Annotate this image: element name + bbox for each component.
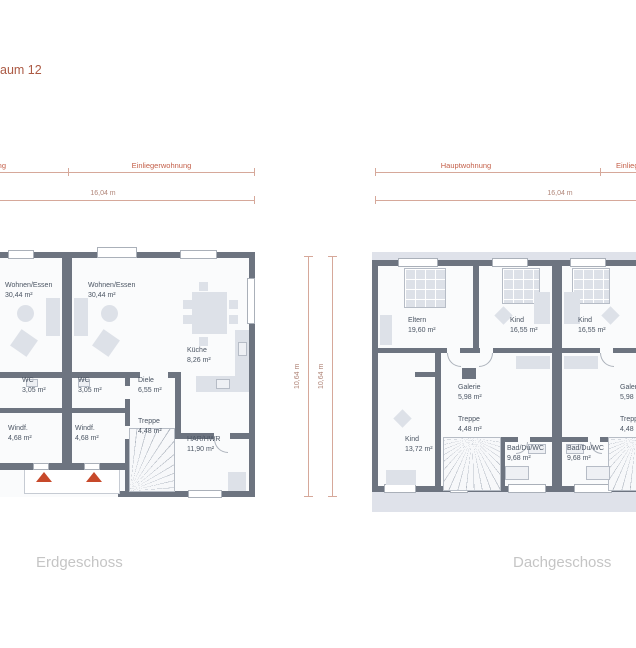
room-name: Wohnen/Essen bbox=[5, 281, 52, 291]
entrance-arrow-icon bbox=[86, 472, 102, 482]
room-name: Treppe bbox=[138, 417, 162, 427]
wardrobe bbox=[564, 356, 598, 369]
zone-label-einliegerwohnung-left: Einliegerwohnung bbox=[68, 161, 255, 170]
staircase bbox=[443, 437, 501, 491]
chair bbox=[199, 282, 208, 291]
bathtub bbox=[586, 466, 610, 480]
room-name: Diele bbox=[138, 376, 162, 386]
chair bbox=[183, 300, 192, 309]
chimney bbox=[462, 368, 476, 379]
room-label-treppe-clipped: Treppe 4,48 m² bbox=[620, 415, 636, 435]
room-label-windfang: Windf. 4,68 m² bbox=[75, 424, 99, 444]
dim-line-vertical bbox=[332, 256, 333, 497]
window bbox=[574, 484, 612, 493]
room-label-treppe: Treppe 4,48 m² bbox=[138, 417, 162, 437]
room-area: 5,98 m² bbox=[620, 393, 636, 403]
wall-middle-left bbox=[378, 348, 552, 353]
window bbox=[188, 490, 222, 498]
window bbox=[492, 258, 528, 267]
room-name: HAR/HWR bbox=[187, 435, 220, 445]
window bbox=[247, 278, 255, 324]
window bbox=[97, 247, 137, 258]
bed bbox=[386, 470, 416, 485]
room-area: 16,55 m² bbox=[578, 326, 606, 336]
room-name: Galerie bbox=[620, 383, 636, 393]
chair bbox=[183, 315, 192, 324]
coffee-table bbox=[17, 305, 34, 322]
sofa bbox=[46, 298, 60, 336]
roof-band-bottom bbox=[372, 492, 636, 512]
room-name: Windf. bbox=[8, 424, 32, 434]
wall-entrance bbox=[0, 463, 126, 470]
entrance-door bbox=[33, 463, 49, 470]
room-name: Kind bbox=[578, 316, 606, 326]
wall-party bbox=[552, 260, 562, 492]
utility-appliance bbox=[228, 472, 246, 491]
wall-middle-right bbox=[562, 348, 636, 353]
window bbox=[398, 258, 438, 267]
wall-hall-kitchen bbox=[175, 372, 181, 433]
room-area: 3,05 m² bbox=[78, 386, 102, 396]
room-name: WC bbox=[22, 376, 46, 386]
door-opening bbox=[125, 386, 130, 399]
dim-line bbox=[0, 172, 255, 173]
room-name: Eltern bbox=[408, 316, 436, 326]
dim-line-vertical bbox=[308, 256, 309, 497]
dim-tick bbox=[304, 256, 313, 257]
caption-dachgeschoss: Dachgeschoss bbox=[513, 554, 611, 571]
room-label-galerie-clipped: Galerie 5,98 m² bbox=[620, 383, 636, 403]
room-label-kind: Kind 16,55 m² bbox=[578, 316, 606, 336]
room-area: 4,68 m² bbox=[8, 434, 32, 444]
window bbox=[180, 250, 217, 259]
dining-table bbox=[192, 292, 227, 334]
wardrobe bbox=[516, 356, 550, 369]
dim-tick bbox=[375, 168, 376, 176]
dim-tick bbox=[254, 168, 255, 176]
room-label-wohnen-essen: Wohnen/Essen 30,44 m² bbox=[88, 281, 135, 301]
room-name: Kind bbox=[510, 316, 538, 326]
room-label-eltern: Eltern 19,60 m² bbox=[408, 316, 436, 336]
room-area: 4,48 m² bbox=[620, 425, 636, 435]
room-label-bad: Bad/Du/WC 9,68 m² bbox=[567, 444, 604, 464]
coffee-table bbox=[101, 305, 118, 322]
room-area: 6,55 m² bbox=[138, 386, 162, 396]
kitchen-hob bbox=[216, 379, 230, 389]
width-dim-label: 16,04 m bbox=[520, 190, 600, 197]
room-area: 16,55 m² bbox=[510, 326, 538, 336]
room-label-wohnen-essen: Wohnen/Essen 30,44 m² bbox=[5, 281, 52, 301]
zone-label-hauptwohnung-right: Hauptwohnung bbox=[375, 161, 557, 170]
caption-erdgeschoss: Erdgeschoss bbox=[36, 554, 123, 571]
room-label-har-hwr: HAR/HWR 11,90 m² bbox=[187, 435, 220, 455]
chair bbox=[199, 337, 208, 346]
bathtub bbox=[505, 466, 529, 480]
room-name: Bad/Du/WC bbox=[567, 444, 604, 454]
dim-tick bbox=[600, 168, 601, 176]
room-name: Treppe bbox=[620, 415, 636, 425]
room-label-kueche: Küche 8,26 m² bbox=[187, 346, 211, 366]
wall-wc-windfang bbox=[0, 408, 126, 413]
room-area: 30,44 m² bbox=[88, 291, 135, 301]
room-area: 4,68 m² bbox=[75, 434, 99, 444]
room-name: Küche bbox=[187, 346, 211, 356]
room-name: Treppe bbox=[458, 415, 482, 425]
room-label-bad: Bad/Du/WC 9,68 m² bbox=[507, 444, 544, 464]
room-name: Kind bbox=[405, 435, 433, 445]
room-name: Bad/Du/WC bbox=[507, 444, 544, 454]
room-area: 30,44 m² bbox=[5, 291, 52, 301]
room-label-wc: WC 3,05 m² bbox=[22, 376, 46, 396]
room-area: 4,48 m² bbox=[138, 427, 162, 437]
dim-line bbox=[375, 172, 636, 173]
chair bbox=[229, 315, 238, 324]
window bbox=[384, 484, 416, 493]
dim-tick bbox=[375, 196, 376, 204]
room-label-kind: Kind 16,55 m² bbox=[510, 316, 538, 336]
room-area: 11,90 m² bbox=[187, 445, 220, 455]
window bbox=[8, 250, 34, 259]
room-label-treppe: Treppe 4,48 m² bbox=[458, 415, 482, 435]
dim-tick bbox=[328, 256, 337, 257]
room-label-diele: Diele 6,55 m² bbox=[138, 376, 162, 396]
room-name: Galerie bbox=[458, 383, 482, 393]
wall-left bbox=[372, 260, 378, 492]
room-area: 8,26 m² bbox=[187, 356, 211, 366]
floorplan-sheet: aum 12 Hauptwohnung Einliegerwohnung 16,… bbox=[0, 0, 636, 648]
room-area: 13,72 m² bbox=[405, 445, 433, 455]
staircase bbox=[129, 428, 175, 492]
wardrobe bbox=[380, 315, 392, 345]
room-name: Windf. bbox=[75, 424, 99, 434]
window bbox=[570, 258, 606, 267]
room-label-kind: Kind 13,72 m² bbox=[405, 435, 433, 455]
room-label-wc: WC 3,05 m² bbox=[78, 376, 102, 396]
dim-tick bbox=[68, 168, 69, 176]
room-label-windfang: Windf. 4,68 m² bbox=[8, 424, 32, 444]
room-area: 19,60 m² bbox=[408, 326, 436, 336]
room-area: 5,98 m² bbox=[458, 393, 482, 403]
dim-line bbox=[375, 200, 636, 201]
room-name: WC bbox=[78, 376, 102, 386]
room-area: 9,68 m² bbox=[507, 454, 544, 464]
wall-party bbox=[62, 258, 72, 470]
dim-tick bbox=[328, 496, 337, 497]
staircase-mirror bbox=[608, 437, 636, 491]
wall-stub bbox=[415, 372, 441, 377]
height-dim-label: 10,64 m bbox=[294, 345, 305, 407]
sofa bbox=[74, 298, 88, 336]
chair bbox=[229, 300, 238, 309]
window bbox=[508, 484, 546, 493]
dormer-window bbox=[404, 268, 446, 308]
zone-label-einliegerwohnung-right: Einliegerwohnung bbox=[616, 161, 636, 170]
page-title-fragment: aum 12 bbox=[0, 63, 42, 77]
dim-tick bbox=[304, 496, 313, 497]
dim-line bbox=[0, 200, 255, 201]
entrance-door bbox=[84, 463, 100, 470]
kitchen-sink bbox=[238, 342, 247, 356]
room-area: 3,05 m² bbox=[22, 386, 46, 396]
zone-label-hauptwohnung-left: Hauptwohnung bbox=[0, 161, 6, 170]
room-label-galerie: Galerie 5,98 m² bbox=[458, 383, 482, 403]
width-dim-label: 16,04 m bbox=[40, 190, 166, 197]
dim-tick bbox=[254, 196, 255, 204]
room-area: 9,68 m² bbox=[567, 454, 604, 464]
entrance-arrow-icon bbox=[36, 472, 52, 482]
room-name: Wohnen/Essen bbox=[88, 281, 135, 291]
room-area: 4,48 m² bbox=[458, 425, 482, 435]
wall-eltern-kind bbox=[473, 260, 479, 352]
height-dim-label: 10,64 m bbox=[318, 345, 329, 407]
